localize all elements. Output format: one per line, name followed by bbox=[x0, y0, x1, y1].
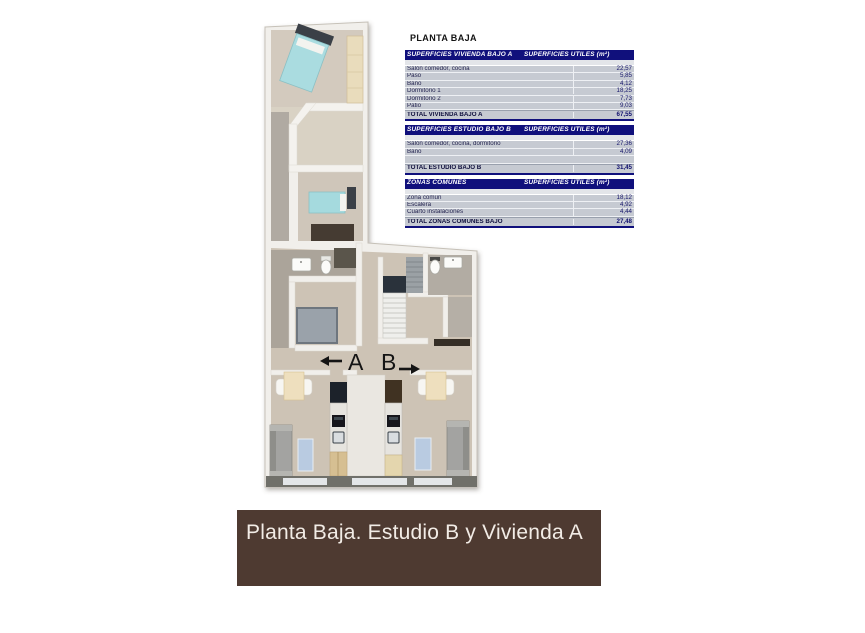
table-row: Salón comedor, cocina, dormitorio 27,36 bbox=[405, 141, 634, 148]
room-label: Dormitorio 2 bbox=[405, 96, 574, 102]
table-estudio-bajo-b: SUPERFICIES ESTUDIO BAJO B SUPERFICIES U… bbox=[405, 125, 634, 174]
unit-b-label: B bbox=[381, 349, 396, 375]
area-value: 7,73 bbox=[574, 96, 634, 102]
junction-wall bbox=[271, 241, 363, 248]
total-label: TOTAL ZONAS COMUNES BAJO bbox=[405, 219, 574, 225]
table-row: Salón comedor, cocina 22,57 bbox=[405, 66, 634, 73]
room-label: Salón comedor, cocina bbox=[405, 66, 574, 72]
room-label: Escalera bbox=[405, 202, 574, 208]
table-total-row: TOTAL ESTUDIO BAJO B 31,45 bbox=[405, 164, 634, 175]
rug-A-icon bbox=[298, 439, 313, 471]
area-value: 27,36 bbox=[574, 141, 634, 147]
table-row: Patio 9,03 bbox=[405, 103, 634, 110]
sinkB-icon bbox=[444, 257, 462, 268]
area-value: 4,44 bbox=[574, 209, 634, 215]
wardrobe-icon bbox=[347, 36, 363, 103]
table-row: Baño 4,09 bbox=[405, 149, 634, 156]
table-row bbox=[405, 156, 634, 163]
area-value: 18,25 bbox=[574, 88, 634, 94]
table-header: ZONAS COMUNES SUPERFICIES UTILES (m²) bbox=[405, 179, 634, 189]
room-label: Salón comedor, cocina, dormitorio bbox=[405, 141, 574, 147]
area-value: 9,03 bbox=[574, 103, 634, 109]
bath-cabinet-icon bbox=[334, 248, 356, 268]
table-header-name: ZONAS COMUNES bbox=[405, 180, 524, 186]
areas-panel: PLANTA BAJA SUPERFICIES VIVIENDA BAJO A … bbox=[405, 33, 634, 232]
table-row: Dormitorio 2 7,73 bbox=[405, 96, 634, 103]
room-label: Baño bbox=[405, 81, 574, 87]
kitchen-island-A-icon bbox=[330, 382, 347, 476]
toiletB-icon bbox=[430, 260, 440, 274]
table-header-name: SUPERFICIES ESTUDIO BAJO B bbox=[405, 127, 524, 133]
table-row: Cuarto instalaciones 4,44 bbox=[405, 209, 634, 216]
room-label: Zona común bbox=[405, 195, 574, 201]
area-value: 18,12 bbox=[574, 195, 634, 201]
area-value: 4,92 bbox=[574, 202, 634, 208]
counter-bar-icon bbox=[434, 339, 470, 346]
table-header: SUPERFICIES VIVIENDA BAJO A SUPERFICIES … bbox=[405, 50, 634, 60]
sink-icon bbox=[292, 258, 311, 271]
unit-divider-wall bbox=[347, 375, 385, 476]
title-banner: Planta Baja. Estudio B y Vivienda A bbox=[237, 510, 601, 586]
room-label: Patio bbox=[405, 103, 574, 109]
window-icon bbox=[414, 478, 452, 485]
paso-floor-lower bbox=[271, 278, 289, 348]
table-header-units: SUPERFICIES UTILES (m²) bbox=[524, 52, 634, 58]
paso-floor bbox=[271, 112, 289, 248]
banner-text: Planta Baja. Estudio B y Vivienda A bbox=[246, 521, 583, 544]
table-row: Dormitorio 1 18,25 bbox=[405, 88, 634, 95]
table-total-row: TOTAL ZONAS COMUNES BAJO 27,48 bbox=[405, 217, 634, 228]
area-value: 4,09 bbox=[574, 149, 634, 155]
sofa-B-icon bbox=[447, 421, 469, 476]
window-icon bbox=[283, 478, 327, 485]
toilet-icon bbox=[321, 260, 331, 274]
table-vivienda-bajo-a: SUPERFICIES VIVIENDA BAJO A SUPERFICIES … bbox=[405, 50, 634, 121]
table-header-units: SUPERFICIES UTILES (m²) bbox=[524, 180, 634, 186]
total-value: 27,48 bbox=[574, 219, 634, 225]
page-title: PLANTA BAJA bbox=[410, 33, 634, 43]
area-value: 5,85 bbox=[574, 73, 634, 79]
total-value: 67,55 bbox=[574, 112, 634, 118]
room-label: Baño bbox=[405, 149, 574, 155]
table-header: SUPERFICIES ESTUDIO BAJO B SUPERFICIES U… bbox=[405, 125, 634, 135]
room-label: Cuarto instalaciones bbox=[405, 209, 574, 215]
unit-a-label: A bbox=[348, 349, 364, 375]
dresser-icon bbox=[311, 224, 354, 241]
kitchen-island-B-icon bbox=[385, 380, 402, 476]
total-label: TOTAL ESTUDIO BAJO B bbox=[405, 165, 574, 171]
page: A B PLANTA BAJA SUPERFICIES VIVIENDA BAJ… bbox=[0, 0, 865, 633]
table-row: Escalera 4,92 bbox=[405, 202, 634, 209]
door-icon bbox=[352, 478, 407, 485]
utility-room-floor bbox=[448, 297, 472, 337]
room-label: Dormitorio 1 bbox=[405, 88, 574, 94]
total-label: TOTAL VIVIENDA BAJO A bbox=[405, 112, 574, 118]
area-value: 22,57 bbox=[574, 66, 634, 72]
table-header-name: SUPERFICIES VIVIENDA BAJO A bbox=[405, 52, 524, 58]
sofa-A-icon bbox=[270, 425, 292, 477]
rug-B-icon bbox=[415, 438, 431, 470]
total-value: 31,45 bbox=[574, 165, 634, 171]
facade-wall bbox=[266, 476, 477, 487]
bathroomB bbox=[428, 255, 472, 295]
area-value: 4,12 bbox=[574, 81, 634, 87]
shower-icon bbox=[297, 308, 337, 343]
table-zonas-comunes: ZONAS COMUNES SUPERFICIES UTILES (m²) Zo… bbox=[405, 179, 634, 228]
table-row: Zona común 18,12 bbox=[405, 195, 634, 202]
room-label: Paso bbox=[405, 73, 574, 79]
table-row: Paso 5,85 bbox=[405, 73, 634, 80]
table-header-units: SUPERFICIES UTILES (m²) bbox=[524, 127, 634, 133]
table-row: Baño 4,12 bbox=[405, 81, 634, 88]
table-total-row: TOTAL VIVIENDA BAJO A 67,55 bbox=[405, 110, 634, 121]
